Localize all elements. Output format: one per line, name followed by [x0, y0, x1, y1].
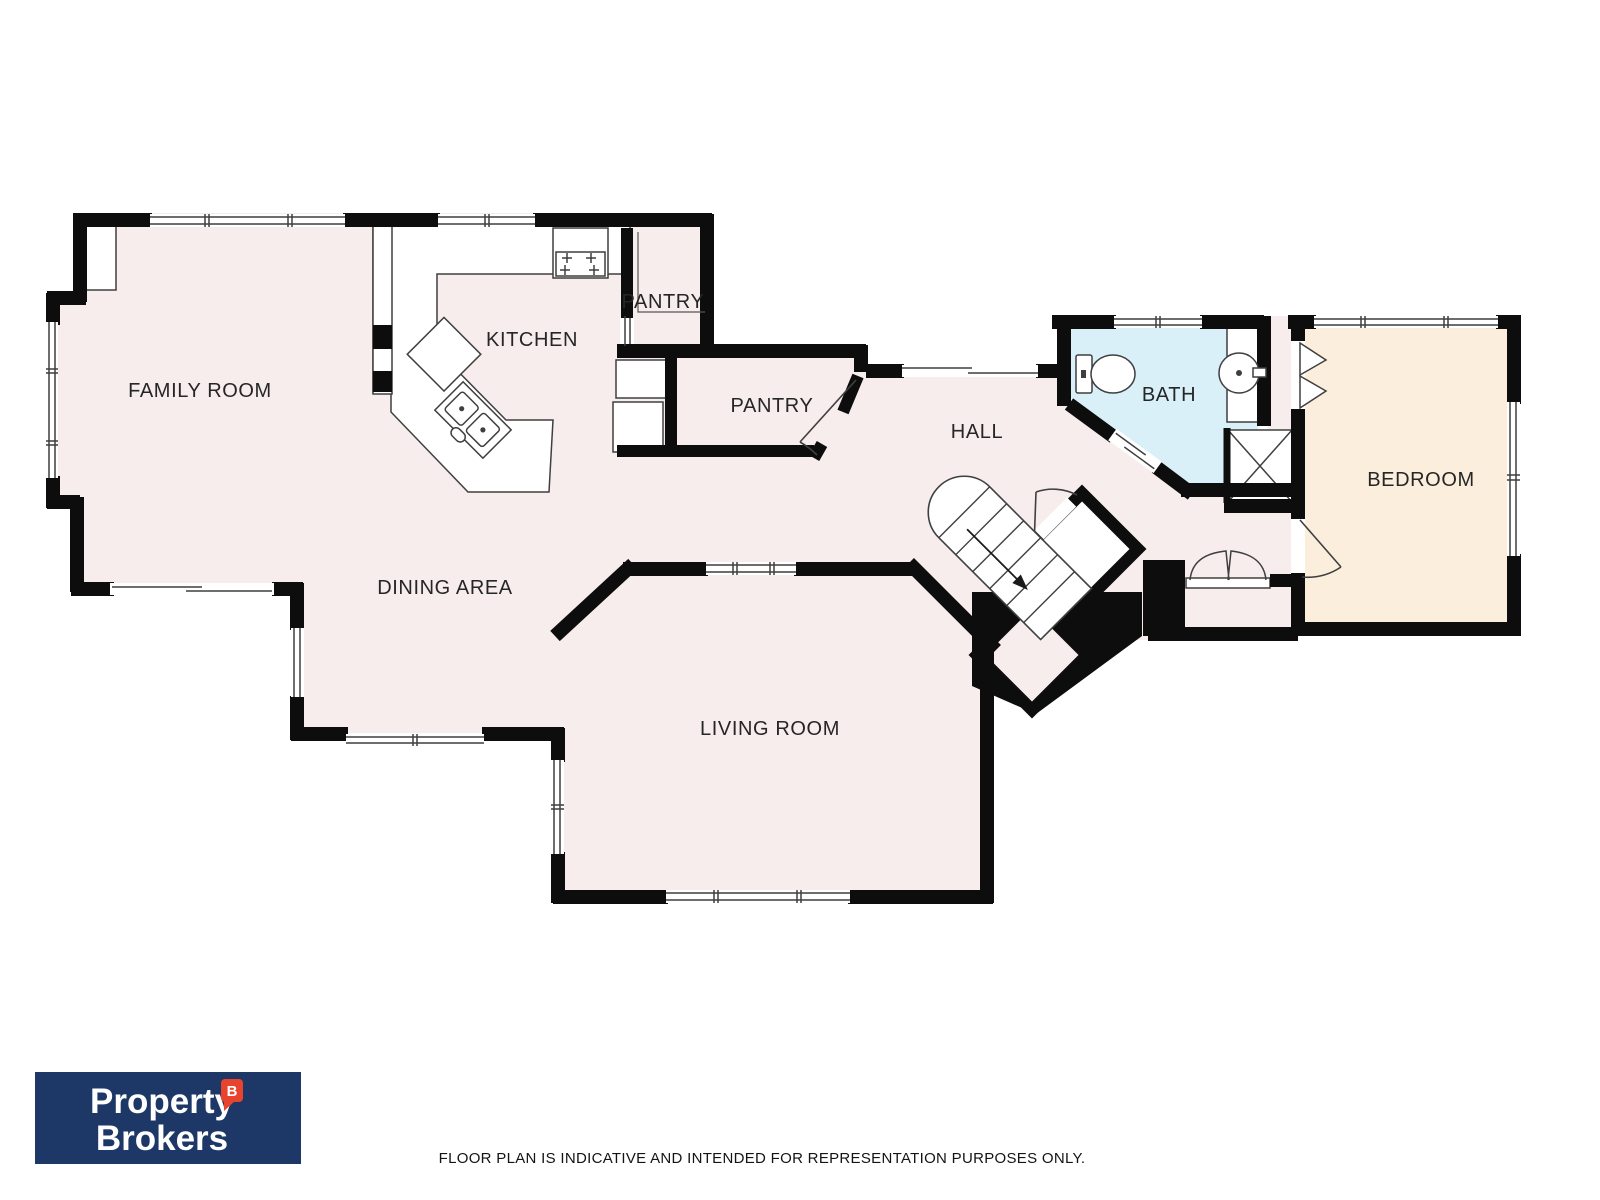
- floor-plan-page: FAMILY ROOM KITCHEN PANTRY PANTRY HALL B…: [0, 0, 1600, 1200]
- room-label-dining-area: DINING AREA: [377, 577, 513, 599]
- logo-line2: Brokers: [96, 1119, 228, 1158]
- kitchen-divider-strip: [373, 226, 392, 394]
- room-label-bedroom: BEDROOM: [1367, 469, 1475, 491]
- logo-line1: Property: [90, 1082, 234, 1121]
- appliance-box-1: [616, 360, 668, 398]
- toilet-icon: [1076, 355, 1135, 393]
- logo-badge-letter: B: [227, 1083, 238, 1100]
- room-label-kitchen: KITCHEN: [486, 329, 578, 351]
- room-label-bath: BATH: [1142, 384, 1196, 406]
- disclaimer-text: FLOOR PLAN IS INDICATIVE AND INTENDED FO…: [439, 1150, 1086, 1167]
- appliance-box-2: [613, 402, 663, 452]
- stove-icon: [553, 228, 608, 278]
- room-label-pantry-main: PANTRY: [731, 395, 814, 417]
- room-label-hall: HALL: [951, 421, 1003, 443]
- property-brokers-logo: Property Brokers B: [35, 1072, 301, 1164]
- room-label-family-room: FAMILY ROOM: [128, 380, 272, 402]
- floor-plan: FAMILY ROOM KITCHEN PANTRY PANTRY HALL B…: [0, 0, 1600, 1200]
- room-label-living-room: LIVING ROOM: [700, 718, 840, 740]
- room-label-pantry-top: PANTRY: [622, 291, 705, 313]
